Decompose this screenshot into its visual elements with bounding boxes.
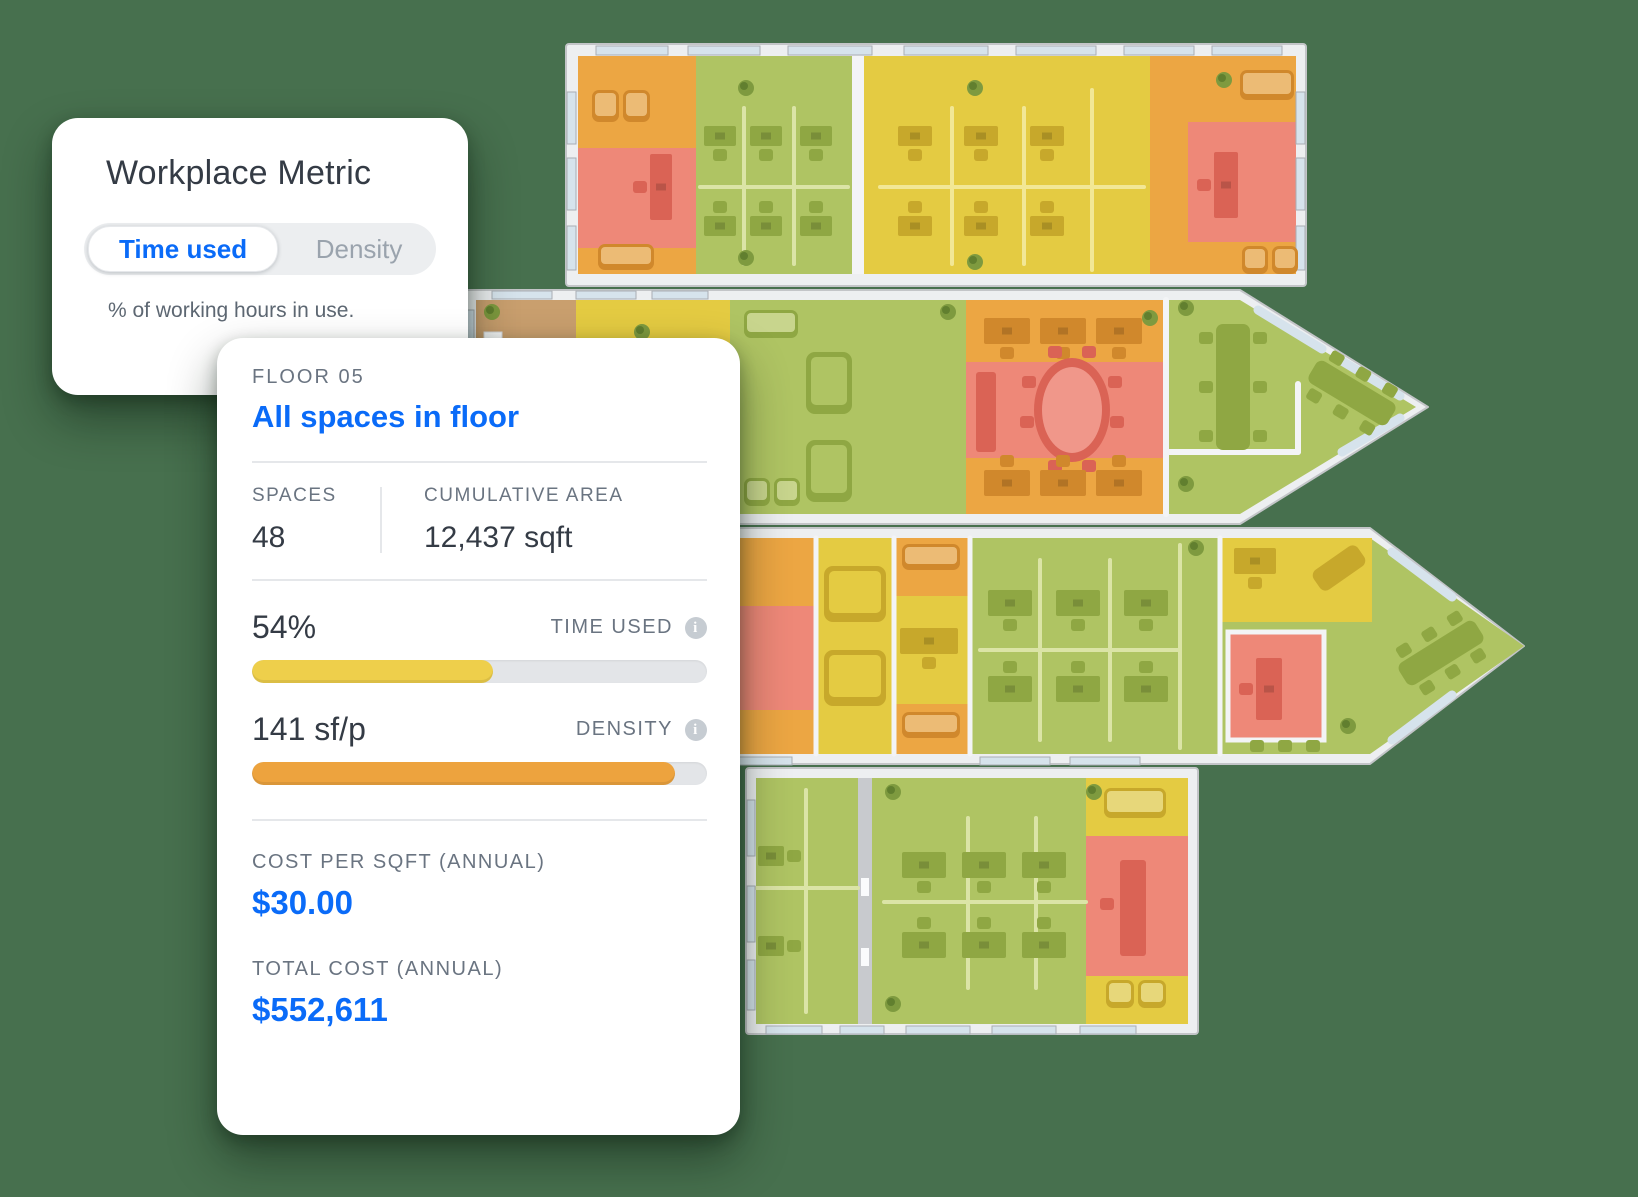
density-label-text: DENSITY — [576, 718, 673, 741]
density-row: 141 sf/p DENSITY i — [252, 711, 707, 748]
toggle-density[interactable]: Density — [282, 234, 436, 265]
density-bar-fill — [252, 762, 675, 785]
time-used-bar — [252, 660, 707, 683]
time-used-label-text: TIME USED — [551, 616, 673, 639]
area-label: CUMULATIVE AREA — [424, 485, 624, 507]
stat-area: CUMULATIVE AREA 12,437 sqft — [382, 485, 624, 555]
info-icon[interactable]: i — [685, 719, 707, 741]
toggle-time-used[interactable]: Time used — [88, 226, 278, 272]
density-bar — [252, 762, 707, 785]
time-used-bar-fill — [252, 660, 493, 683]
divider — [252, 819, 707, 821]
metric-toggle[interactable]: Time used Density — [84, 223, 436, 275]
floor-title[interactable]: All spaces in floor — [252, 399, 707, 435]
info-icon[interactable]: i — [685, 617, 707, 639]
spaces-value: 48 — [252, 521, 380, 555]
page: Workplace Metric Time used Density % of … — [0, 0, 1638, 1192]
cost-per-sqft-value: $30.00 — [252, 884, 707, 922]
workplace-metric-title: Workplace Metric — [106, 154, 436, 193]
floor-label: FLOOR 05 — [252, 366, 707, 389]
time-used-row: 54% TIME USED i — [252, 609, 707, 646]
density-value: 141 sf/p — [252, 711, 366, 748]
spaces-label: SPACES — [252, 485, 380, 507]
floor-detail-card: FLOOR 05 All spaces in floor SPACES 48 C… — [217, 338, 740, 1135]
metric-description: % of working hours in use. — [108, 299, 436, 323]
stats-row: SPACES 48 CUMULATIVE AREA 12,437 sqft — [252, 463, 707, 579]
divider — [252, 579, 707, 581]
density-label: DENSITY i — [576, 718, 707, 741]
time-used-value: 54% — [252, 609, 316, 646]
cost-per-sqft-label: COST PER SQFT (ANNUAL) — [252, 851, 707, 874]
area-value: 12,437 sqft — [424, 521, 624, 555]
total-cost-value: $552,611 — [252, 991, 707, 1029]
total-cost-label: TOTAL COST (ANNUAL) — [252, 958, 707, 981]
time-used-label: TIME USED i — [551, 616, 707, 639]
stat-spaces: SPACES 48 — [252, 485, 380, 555]
